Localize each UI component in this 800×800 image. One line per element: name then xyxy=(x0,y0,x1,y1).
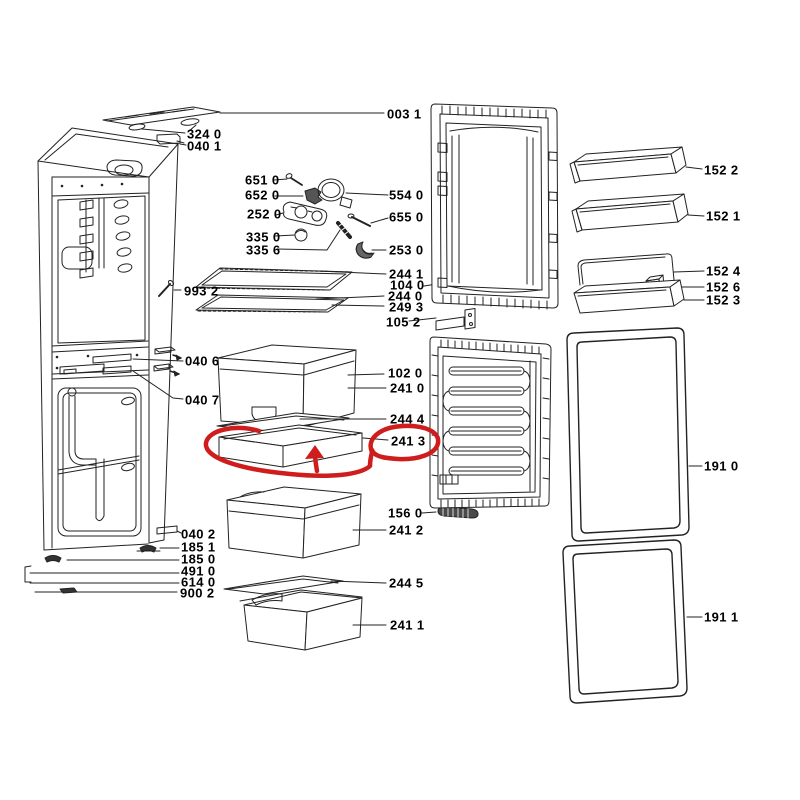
part-label-900-2: 900 2 xyxy=(180,587,215,600)
part-label-152-2: 152 2 xyxy=(704,164,739,177)
part-label-105-2: 105 2 xyxy=(386,316,421,329)
part-label-003-1: 003 1 xyxy=(387,108,422,121)
part-label-156-0: 156 0 xyxy=(388,507,423,520)
drawer-241-1-drawing xyxy=(240,590,386,650)
part-label-244-4: 244 4 xyxy=(390,413,425,426)
part-label-040-1: 040 1 xyxy=(187,140,222,153)
part-label-554-0: 554 0 xyxy=(389,189,424,202)
glass-shelf-244-0-drawing xyxy=(196,295,384,312)
part-label-253-0: 253 0 xyxy=(389,244,424,257)
part-label-244-5: 244 5 xyxy=(389,577,424,590)
fridge-door-drawing xyxy=(431,104,558,309)
diagram-canvas: 003 1 324 0 040 1 651 0 652 0 252 0 335 … xyxy=(0,0,800,800)
part-label-249-3: 249 3 xyxy=(389,301,424,314)
gasket-191-1-drawing xyxy=(563,540,702,703)
door-shelf-152-1-drawing xyxy=(572,194,704,232)
part-label-040-6: 040 6 xyxy=(185,355,220,368)
part-label-191-1: 191 1 xyxy=(704,611,739,624)
part-label-993-2: 993 2 xyxy=(184,285,219,298)
cabinet-body-drawing xyxy=(38,128,181,550)
hinge-strip-156-0-drawing xyxy=(422,507,478,518)
part-label-241-2: 241 2 xyxy=(389,524,424,537)
part-label-191-0: 191 0 xyxy=(704,460,739,473)
door-shelf-152-2-drawing xyxy=(570,147,702,183)
door-shelf-152-3-drawing xyxy=(574,280,704,313)
part-label-152-3: 152 3 xyxy=(706,294,741,307)
drawer-241-2-drawing xyxy=(227,487,386,558)
freezer-evaporator-door-drawing xyxy=(430,337,551,508)
part-label-651-0: 651 0 xyxy=(245,174,280,187)
part-label-652-0: 652 0 xyxy=(245,189,280,202)
trim-frame-152-4-drawing xyxy=(578,254,704,285)
drawer-241-3-drawing xyxy=(219,425,388,467)
thermostat-parts-drawing xyxy=(274,173,388,258)
part-label-655-0: 655 0 xyxy=(389,211,424,224)
part-label-152-1: 152 1 xyxy=(706,210,741,223)
part-label-241-3: 241 3 xyxy=(391,435,426,448)
part-label-241-1: 241 1 xyxy=(390,619,425,632)
part-label-040-7: 040 7 xyxy=(185,394,220,407)
part-label-241-0: 241 0 xyxy=(390,382,425,395)
glass-shelf-244-1-drawing xyxy=(196,268,386,290)
part-label-335-6: 335 6 xyxy=(246,244,281,257)
part-label-252-0: 252 0 xyxy=(247,208,282,221)
part-label-102-0: 102 0 xyxy=(388,367,423,380)
gasket-191-0-drawing xyxy=(567,328,702,541)
screw-993-2-drawing xyxy=(159,279,181,296)
part-label-152-4: 152 4 xyxy=(706,265,741,278)
